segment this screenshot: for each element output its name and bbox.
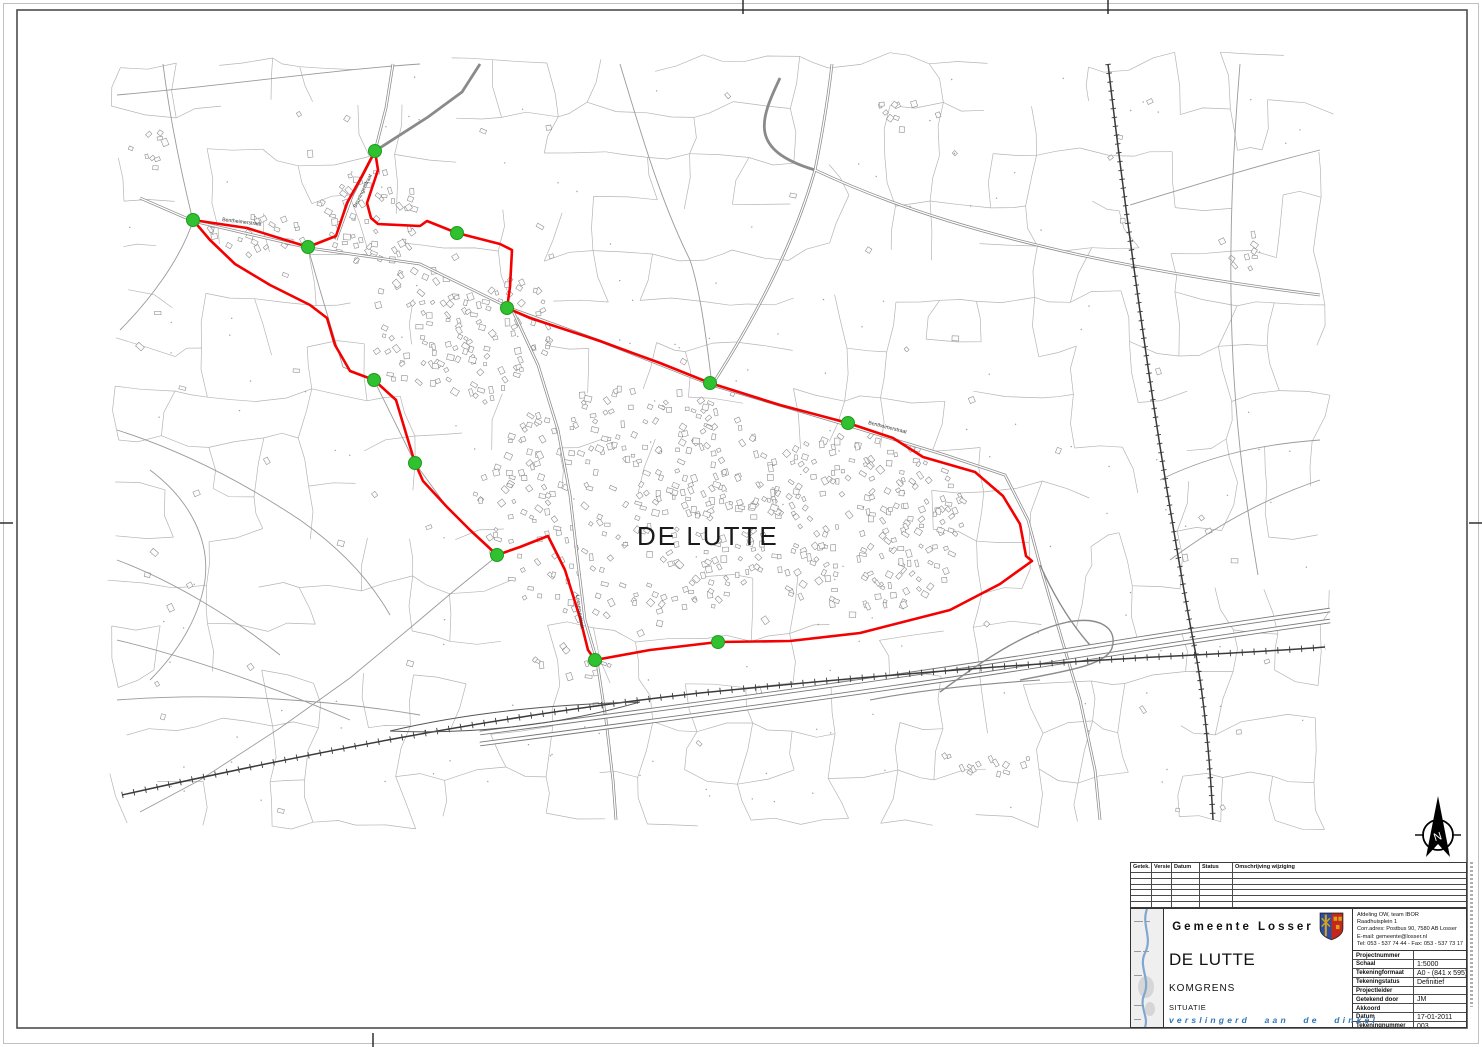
title-block-right: Afdeling OW, team IBOR Raadhuisplein 1 C… xyxy=(1353,909,1466,1027)
property-row: Projectleider xyxy=(1353,986,1466,995)
railway-lines xyxy=(122,64,1325,820)
municipality-name: Gemeente Losser xyxy=(1172,921,1314,933)
revision-header: Status xyxy=(1200,863,1233,872)
project-title: DE LUTTE xyxy=(1169,950,1352,970)
revision-header-row: Getek. Versie Datum Status Omschrijving … xyxy=(1131,863,1466,872)
drawing-type: SITUATIE xyxy=(1169,1003,1206,1012)
address-line: Afdeling OW, team IBOR xyxy=(1357,912,1464,919)
property-row: TekeningstatusDefinitief xyxy=(1353,977,1466,986)
north-arrow-icon: N xyxy=(1415,796,1461,857)
address-line: E-mail: gemeente@losser.nl xyxy=(1357,934,1464,941)
revision-header: Getek. xyxy=(1131,863,1152,872)
municipality-slogan: verslingerd aan de dinkel xyxy=(1169,1015,1378,1025)
plotted-drawing-sheet: { "map": { "place_label": "DE LUTTE", "r… xyxy=(0,0,1482,1047)
address-line: Corr.adres: Postbus 90, 7580 AB Losser xyxy=(1357,926,1464,933)
revision-header: Datum xyxy=(1172,863,1200,872)
property-row: Getekend doorJM xyxy=(1353,994,1466,1003)
revision-header: Omschrijving wijziging xyxy=(1233,863,1466,872)
illegible-filepath-sidenote xyxy=(1470,862,1473,1007)
place-label: DE LUTTE xyxy=(637,521,779,551)
revision-empty-row xyxy=(1131,901,1466,907)
address-line: Raadhuisplein 1 xyxy=(1357,919,1464,926)
property-row: Akkoord xyxy=(1353,1003,1466,1012)
municipality-header: Gemeente Losser xyxy=(1164,912,1352,941)
property-row: TekeningformaatA0 - (841 x 595) xyxy=(1353,968,1466,977)
property-row: Schaal1:5000 xyxy=(1353,959,1466,968)
revision-table: Getek. Versie Datum Status Omschrijving … xyxy=(1130,862,1467,908)
dinkel-river-motif xyxy=(1131,909,1164,1027)
department-address: Afdeling OW, team IBOR Raadhuisplein 1 C… xyxy=(1353,909,1466,950)
property-row: Projectnummer xyxy=(1353,951,1466,959)
project-subject: KOMGRENS xyxy=(1169,983,1352,994)
komgrens-markers xyxy=(187,145,855,667)
title-block-center: Gemeente Losser DE LUTTE KOMGRENS SITUAT… xyxy=(1164,909,1353,1027)
komgrens-boundary xyxy=(193,151,1032,660)
address-line: Tel: 053 - 537 74 44 - Fax: 053 - 537 73… xyxy=(1357,941,1464,948)
revision-header: Versie xyxy=(1152,863,1172,872)
losser-coat-of-arms-icon xyxy=(1319,912,1344,941)
title-block: Gemeente Losser DE LUTTE KOMGRENS SITUAT… xyxy=(1130,908,1467,1028)
title-block-river-strip xyxy=(1131,909,1164,1027)
